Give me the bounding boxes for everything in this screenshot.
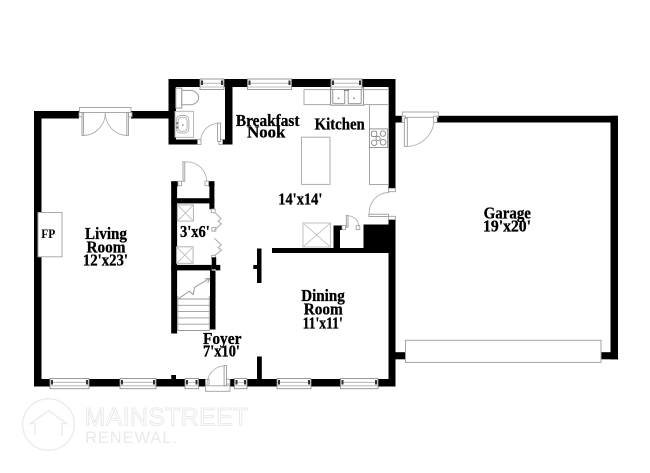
svg-text:FP: FP bbox=[41, 226, 55, 241]
svg-text:Kitchen: Kitchen bbox=[315, 115, 365, 134]
svg-text:7'x10': 7'x10' bbox=[203, 342, 240, 361]
svg-text:11'x11': 11'x11' bbox=[303, 313, 343, 332]
svg-text:14'x14': 14'x14' bbox=[278, 189, 322, 208]
svg-text:19'x20': 19'x20' bbox=[483, 216, 531, 235]
svg-text:Nook: Nook bbox=[247, 123, 286, 142]
svg-text:RENEWAL.: RENEWAL. bbox=[85, 429, 178, 447]
svg-text:3'x6': 3'x6' bbox=[180, 222, 210, 241]
svg-text:12'x23': 12'x23' bbox=[83, 251, 128, 270]
svg-text:MAINSTREET: MAINSTREET bbox=[85, 404, 249, 432]
